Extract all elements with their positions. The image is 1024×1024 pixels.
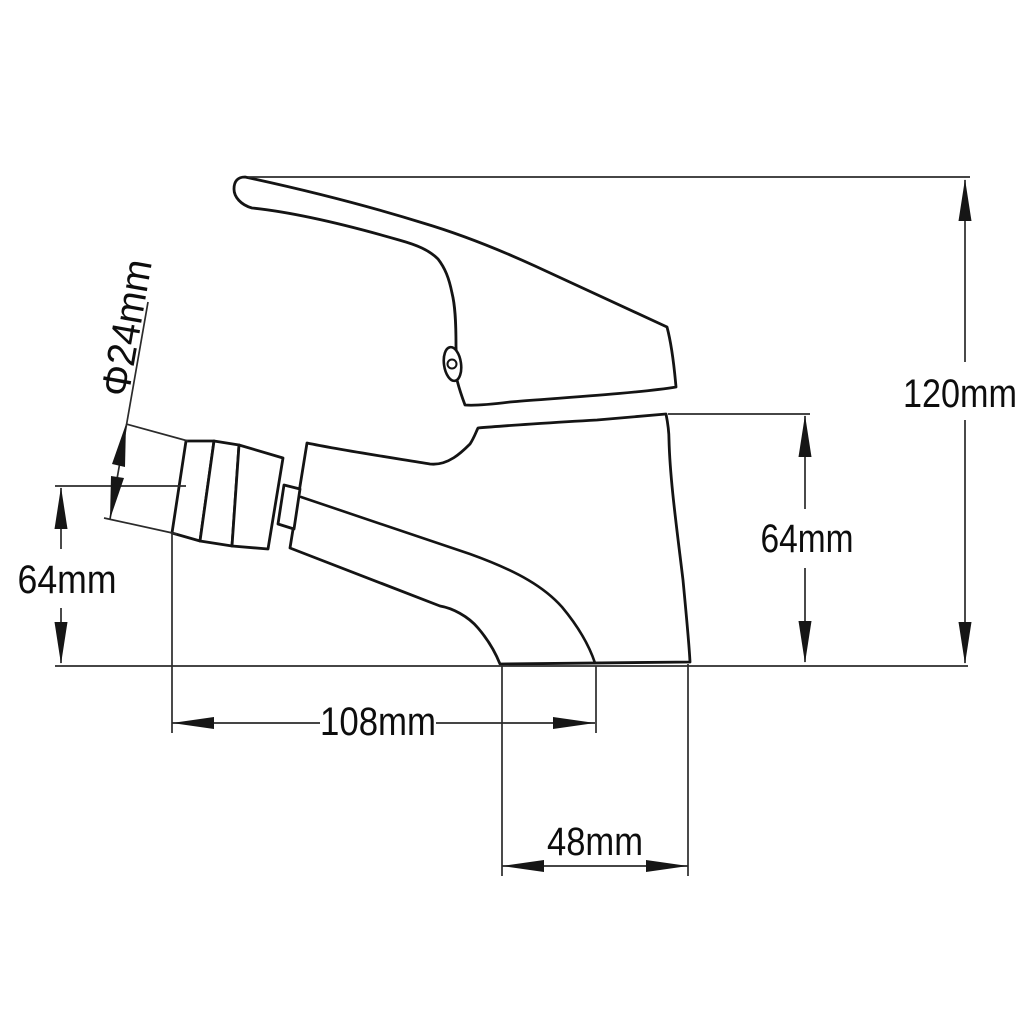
dimension-body-height: 64mm [668, 414, 854, 663]
technical-drawing-page: 120mm 64mm 64mm 108mm 48mm [0, 0, 1024, 1024]
dimension-base-depth: 48mm [502, 664, 688, 876]
arrowhead-right-icon [553, 717, 595, 729]
arrowhead-left-icon [502, 860, 544, 872]
arrowhead-down-icon [110, 476, 124, 519]
arrowhead-up-icon [959, 179, 972, 221]
arrowhead-up-icon [112, 424, 126, 467]
arrowhead-up-icon [799, 415, 812, 457]
arrowhead-up-icon [55, 487, 68, 529]
arrowhead-down-icon [55, 622, 68, 664]
faucet-technical-drawing: 120mm 64mm 64mm 108mm 48mm [0, 0, 1024, 1024]
extension-line-upper [126, 424, 188, 441]
arrowhead-down-icon [959, 622, 972, 664]
aerator-ring-3 [232, 445, 283, 549]
dimension-label-body-height: 64mm [761, 517, 854, 561]
faucet-outline [172, 177, 690, 664]
dimension-label-base-depth: 48mm [547, 820, 643, 864]
arrowhead-down-icon [799, 621, 812, 663]
dimension-label-total-height: 120mm [903, 372, 1017, 416]
dimension-outlet-height: 64mm [18, 486, 187, 664]
dimension-aerator-diameter: Φ24mm [94, 256, 188, 534]
faucet-body [290, 414, 690, 664]
extension-line-lower [104, 518, 177, 534]
dimension-label-outlet-height: 64mm [18, 558, 117, 602]
arrowhead-right-icon [646, 860, 688, 872]
dimension-label-aerator-diameter: Φ24mm [94, 256, 161, 400]
dimension-label-spout-reach: 108mm [320, 700, 436, 744]
arrowhead-left-icon [172, 717, 214, 729]
aerator [172, 441, 300, 549]
